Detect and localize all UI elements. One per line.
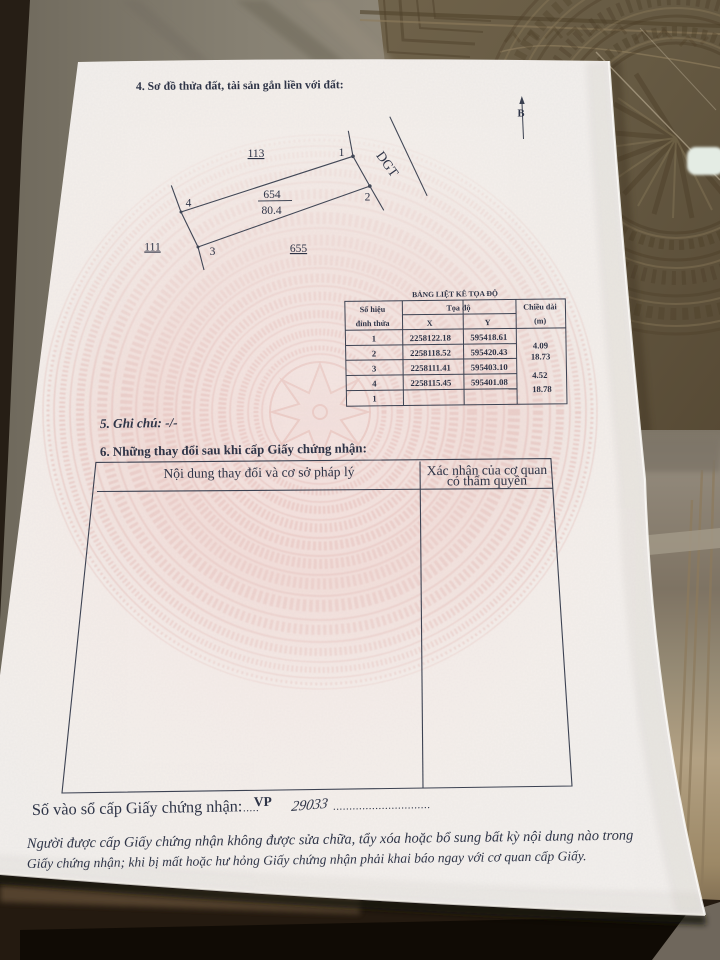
svg-text:4. Sơ đồ thửa đất, tài sản gắn: 4. Sơ đồ thửa đất, tài sản gắn liền với … (136, 78, 344, 93)
svg-text:đỉnh thửa: đỉnh thửa (356, 319, 390, 328)
svg-text:5. Ghi chú: -/-: 5. Ghi chú: -/- (100, 415, 178, 431)
svg-text:18.78: 18.78 (532, 384, 552, 394)
svg-text:có thẩm quyền: có thẩm quyền (447, 473, 527, 489)
svg-text:X: X (427, 319, 433, 328)
svg-text:Nội dung thay đổi và cơ sở phá: Nội dung thay đổi và cơ sở pháp lý (163, 464, 354, 481)
svg-text:4.52: 4.52 (532, 370, 547, 380)
svg-text:595418.61: 595418.61 (470, 332, 507, 342)
svg-text:18.73: 18.73 (531, 351, 551, 361)
svg-text:2258115.45: 2258115.45 (410, 378, 452, 389)
svg-text:4: 4 (372, 378, 377, 388)
svg-text:(m): (m) (534, 316, 547, 325)
svg-text:Số vào sổ cấp Giấy chứng nhận:: Số vào sổ cấp Giấy chứng nhận: (32, 796, 243, 819)
svg-text:113: 113 (248, 148, 265, 160)
svg-text:595403.10: 595403.10 (471, 362, 509, 372)
svg-text:3: 3 (210, 246, 216, 258)
svg-text:4.09: 4.09 (533, 340, 549, 350)
svg-text:1: 1 (372, 333, 376, 343)
svg-text:2258111.41: 2258111.41 (410, 363, 450, 373)
svg-text:2: 2 (365, 192, 371, 204)
svg-text:VP: VP (254, 794, 272, 809)
svg-text:B: B (518, 109, 525, 120)
svg-text:Tọa độ: Tọa độ (446, 303, 470, 312)
svg-text:654: 654 (263, 189, 281, 201)
svg-text:..............................: .............................. (333, 799, 431, 813)
svg-text:655: 655 (290, 243, 308, 255)
svg-text:595401.08: 595401.08 (471, 377, 509, 387)
svg-text:BẢNG LIỆT KÊ TỌA ĐỘ: BẢNG LIỆT KÊ TỌA ĐỘ (412, 288, 498, 299)
svg-text:2258118.52: 2258118.52 (410, 348, 451, 358)
svg-text:2: 2 (372, 348, 376, 358)
svg-text:Chiều dài: Chiều dài (523, 302, 557, 311)
svg-text:80.4: 80.4 (261, 205, 281, 217)
svg-text:1: 1 (372, 393, 376, 403)
svg-text:2258122.18: 2258122.18 (410, 333, 452, 344)
svg-text:111: 111 (144, 242, 161, 254)
svg-text:Số hiệu: Số hiệu (360, 305, 386, 314)
svg-text:595420.43: 595420.43 (470, 347, 508, 357)
svg-text:1: 1 (339, 147, 345, 159)
svg-text:4: 4 (186, 198, 192, 210)
svg-text:29033: 29033 (290, 796, 329, 815)
svg-text:3: 3 (372, 363, 377, 373)
svg-text:Y: Y (485, 318, 491, 327)
